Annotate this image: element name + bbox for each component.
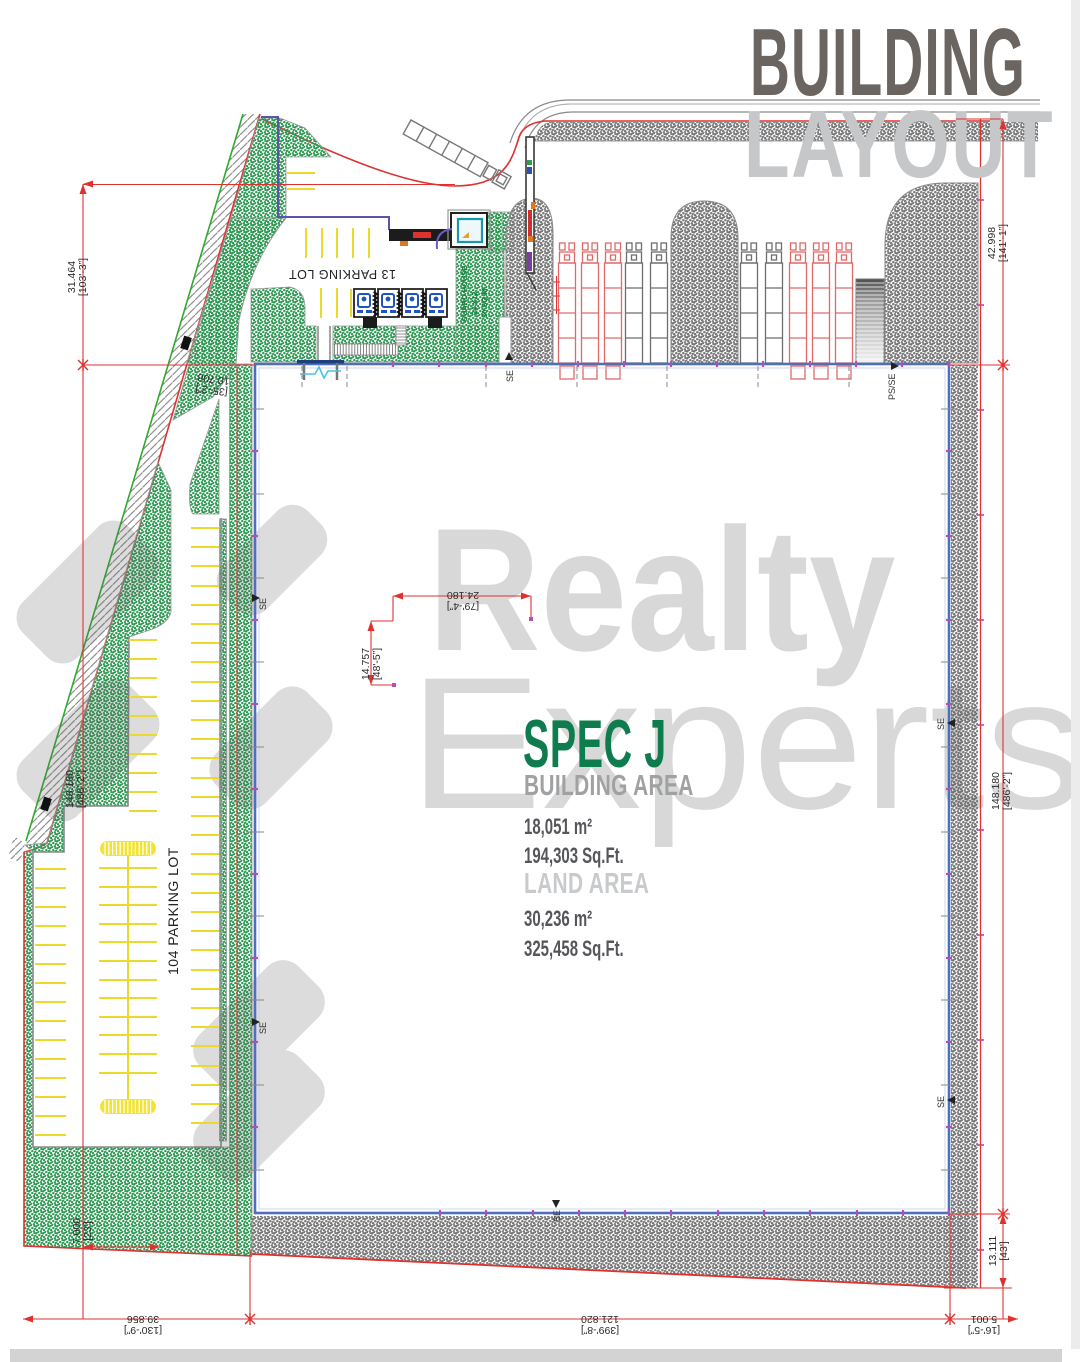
svg-text:[399'-8”]: [399'-8”]: [581, 1324, 619, 1336]
svg-text:[23']: [23']: [82, 1221, 94, 1241]
svg-text:[141'-1”]: [141'-1”]: [997, 224, 1009, 262]
svg-text:[79'-4”]: [79'-4”]: [447, 600, 479, 612]
svg-text:BUILDING: BUILDING: [750, 8, 1026, 116]
svg-text:[43']: [43']: [998, 1241, 1010, 1261]
svg-text:LAND AREA: LAND AREA: [524, 868, 649, 900]
svg-text:24'X12': 24'X12': [470, 290, 479, 315]
svg-text:39.856: 39.856: [127, 1313, 159, 1325]
svg-text:24.180: 24.180: [447, 589, 479, 601]
svg-text:PS/SE: PS/SE: [887, 373, 897, 400]
svg-text:[130'-9”]: [130'-9”]: [124, 1324, 162, 1336]
svg-text:[16'-5”]: [16'-5”]: [968, 1324, 1000, 1336]
svg-text:[486'-2”]: [486'-2”]: [1001, 772, 1013, 810]
svg-text:GUARD HOUSE: GUARD HOUSE: [460, 266, 469, 322]
svg-text:194,303 Sq.Ft.: 194,303 Sq.Ft.: [524, 843, 624, 868]
svg-text:Experts: Experts: [409, 639, 1080, 849]
svg-text:SE: SE: [258, 1022, 268, 1034]
svg-text:325,458 Sq.Ft.: 325,458 Sq.Ft.: [524, 936, 624, 961]
svg-text:30 SQ.M.: 30 SQ.M.: [480, 286, 489, 318]
svg-text:BUILDING AREA: BUILDING AREA: [524, 770, 694, 802]
svg-text:[486'-2”]: [486'-2”]: [75, 770, 87, 808]
svg-text:104 PARKING LOT: 104 PARKING LOT: [165, 847, 181, 975]
svg-text:[48'-5”]: [48'-5”]: [371, 648, 383, 680]
svg-text:SE: SE: [936, 718, 946, 730]
svg-text:18,051 m²: 18,051 m²: [524, 814, 592, 839]
svg-text:[103'-3”]: [103'-3”]: [77, 258, 89, 296]
svg-text:30,236 m²: 30,236 m²: [524, 906, 592, 931]
svg-text:13 PARKING LOT: 13 PARKING LOT: [289, 267, 397, 281]
svg-text:SE: SE: [505, 370, 515, 382]
svg-text:SE: SE: [936, 1096, 946, 1108]
svg-text:SE: SE: [258, 598, 268, 610]
svg-text:5.001: 5.001: [971, 1313, 997, 1325]
svg-text:SE: SE: [552, 1210, 562, 1222]
svg-text:121.820: 121.820: [581, 1313, 619, 1325]
